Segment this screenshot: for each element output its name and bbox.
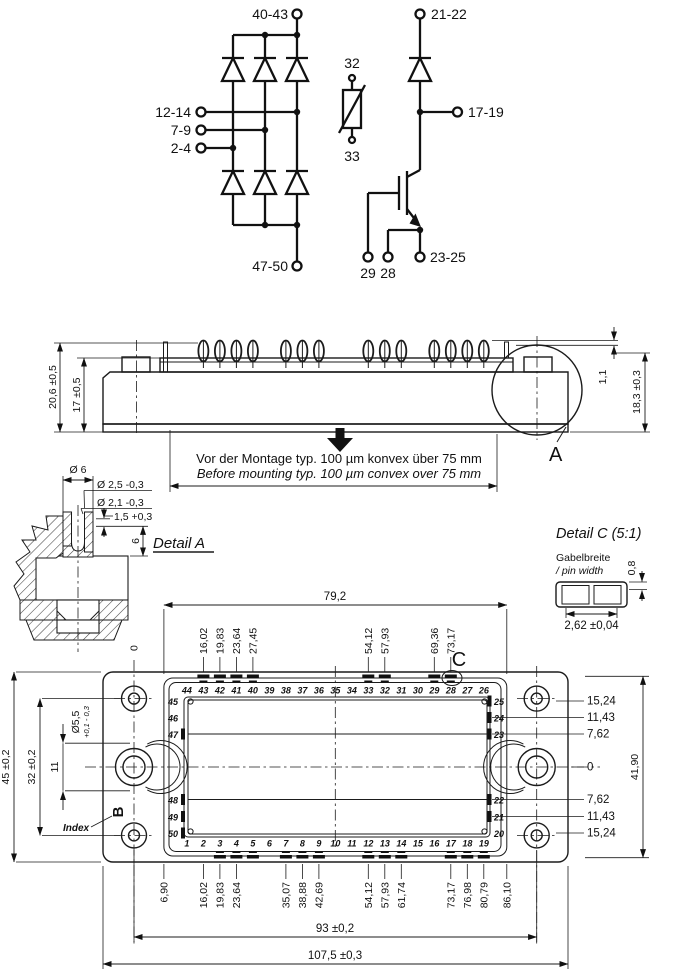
svg-text:31: 31 [396,686,406,696]
svg-text:42: 42 [214,686,225,696]
svg-text:14: 14 [396,839,406,849]
pin-slots [181,675,492,859]
svg-text:15: 15 [413,839,424,849]
note-german: Vor der Montage typ. 100 µm konvex über … [196,451,482,466]
svg-text:16: 16 [429,839,440,849]
top-dimension-labels: 16,02 19,83 23,64 27,45 54,12 57,93 69,3… [198,628,457,672]
technical-drawing: 40-43 12-14 7-9 2-4 47-50 32 33 21-22 [0,0,676,974]
svg-text:27: 27 [461,686,473,696]
thermistor-symbol: 32 33 [339,55,365,164]
igbt-branch: 21-22 17-19 23-25 29 28 [360,6,504,281]
svg-text:57,93: 57,93 [379,628,391,654]
svg-text:20: 20 [493,829,504,839]
dim-hole-dia: Ø5,5 [70,710,82,733]
svg-text:0: 0 [587,762,593,774]
convex-note: Vor der Montage typ. 100 µm konvex über … [170,428,497,492]
detail-c-view: Detail C (5:1) Gabelbreite / pin width 2… [555,526,647,632]
detail-a-dia6: Ø 6 [70,464,87,476]
side-view: A 20,6 ±0,5 17 ±0,5 1,1 18,3 ±0,3 Vor de… [47,327,650,492]
terminal-circle [453,108,462,117]
index-label: Index [63,823,90,834]
detail-a-view: Ø 6 Ø 2,5 -0,3 Ø 2,1 -0,3 1,5 +0,3 6 Det… [14,464,214,652]
svg-text:54,12: 54,12 [363,882,375,908]
svg-text:40: 40 [247,686,258,696]
pin-numbers-bottom: 1 2 3 4 5 6 7 8 9 10 11 12 13 14 15 16 1… [184,839,489,849]
dim-body-height: 18,3 ±0,3 [631,370,643,414]
svg-text:46: 46 [167,714,179,724]
detail-c-label-de: Gabelbreite [556,552,610,564]
svg-text:43: 43 [197,686,208,696]
svg-text:15,24: 15,24 [587,696,616,708]
svg-text:9: 9 [316,839,321,849]
svg-text:13: 13 [380,839,390,849]
terminal-label-29: 29 [360,265,376,281]
svg-text:32: 32 [380,686,390,696]
terminal-label-12-14: 12-14 [155,104,191,120]
svg-text:7,62: 7,62 [587,794,609,806]
terminal-label-7-9: 7-9 [171,122,191,138]
detail-a-dia21: Ø 2,1 -0,3 [97,497,144,509]
pin-numbers-right: 25 24 23 22 21 20 [493,697,505,839]
dim-107-5: 107,5 ±0,3 [308,950,362,962]
dim-height-41-90: 41,90 [629,754,641,780]
terminal-circle [416,10,425,19]
terminal-label-32: 32 [344,55,360,71]
svg-text:54,12: 54,12 [363,628,375,654]
dim-93: 93 ±0,2 [316,923,354,935]
svg-text:57,93: 57,93 [379,882,391,908]
terminal-circle [349,137,355,143]
svg-text:11: 11 [347,839,356,849]
svg-text:2: 2 [200,839,206,849]
svg-text:8: 8 [300,839,305,849]
detail-a-depth: 6 [130,538,142,544]
svg-text:35: 35 [330,686,341,696]
detail-a-lip: 1,5 +0,3 [114,511,152,523]
detail-c-height: 0,8 [626,561,638,576]
svg-text:23: 23 [493,730,504,740]
svg-text:69,36: 69,36 [429,628,441,654]
svg-text:19,83: 19,83 [214,628,226,654]
detail-a-dia25: Ø 2,5 -0,3 [97,479,144,491]
terminal-circle [197,108,206,117]
diode-symbols-bottom [222,171,308,194]
detail-a-callout-label: A [549,444,563,466]
svg-text:29: 29 [428,686,439,696]
svg-text:47: 47 [167,730,179,740]
svg-text:23,64: 23,64 [231,628,243,654]
svg-text:45: 45 [167,697,179,707]
svg-text:1: 1 [184,839,189,849]
svg-text:6,90: 6,90 [158,882,170,903]
terminal-label-2-4: 2-4 [171,140,191,156]
svg-text:34: 34 [347,686,357,696]
svg-text:30: 30 [413,686,423,696]
svg-text:22: 22 [493,796,504,806]
dim-pin-span: 79,2 [324,591,346,603]
svg-text:19,83: 19,83 [214,882,226,908]
terminal-circle [197,144,206,153]
svg-text:6: 6 [267,839,273,849]
terminal-circle [384,253,393,262]
terminal-label-23-25: 23-25 [430,249,466,265]
terminal-label-21-22: 21-22 [431,6,467,22]
svg-text:7: 7 [283,839,289,849]
svg-text:16,02: 16,02 [198,628,210,654]
svg-text:41: 41 [230,686,241,696]
bridge-rectifier: 40-43 12-14 7-9 2-4 47-50 [155,6,308,274]
svg-text:11,43: 11,43 [587,712,615,724]
terminal-label-17-19: 17-19 [468,104,504,120]
svg-text:80,79: 80,79 [478,882,490,908]
detail-c-title: Detail C (5:1) [556,526,641,542]
svg-text:42,69: 42,69 [313,882,325,908]
svg-text:38,88: 38,88 [297,882,309,908]
svg-text:27,45: 27,45 [247,628,259,654]
top-view: 44 43 42 41 40 39 38 37 36 35 34 33 32 3… [0,591,649,969]
svg-text:35,07: 35,07 [280,882,292,908]
svg-text:24: 24 [493,714,504,724]
right-dimension-labels: 15,24 11,43 7,62 0 7,62 11,43 15,24 [492,696,616,840]
svg-text:3: 3 [217,839,222,849]
terminal-circle [293,10,302,19]
svg-text:15,24: 15,24 [587,828,616,840]
datasheet-drawing-page: 40-43 12-14 7-9 2-4 47-50 32 33 21-22 [0,0,676,974]
dim-hole-pitch-32: 32 ±0,2 [26,749,38,784]
svg-text:37: 37 [297,686,308,696]
detail-c-width: 2,62 ±0,04 [564,620,619,632]
terminal-label-40-43: 40-43 [252,6,288,22]
svg-text:39: 39 [264,686,274,696]
svg-text:73,17: 73,17 [445,882,457,908]
svg-text:61,74: 61,74 [396,882,408,908]
svg-text:33: 33 [363,686,373,696]
circuit-schematic: 40-43 12-14 7-9 2-4 47-50 32 33 21-22 [155,6,504,281]
note-english: Before mounting typ. 100 µm convex over … [197,466,481,481]
dim-hole-tol: +0,1 - 0,3 [82,705,91,738]
detail-c-label-en: / pin width [555,565,603,577]
dim-zero-top: 0 [129,645,141,651]
svg-text:25: 25 [493,697,505,707]
svg-text:26: 26 [478,686,490,696]
diode-symbols-top [222,58,308,81]
dim-height-inner: 17 ±0,5 [71,377,83,412]
terminal-circle [293,262,302,271]
terminal-label-47-50: 47-50 [252,258,288,274]
svg-text:12: 12 [363,839,373,849]
pin-numbers-top: 44 43 42 41 40 39 38 37 36 35 34 33 32 3… [181,686,490,696]
svg-text:21: 21 [493,813,504,823]
terminal-circle [349,75,355,81]
terminal-label-28: 28 [380,265,396,281]
index-mark-b: B [110,806,127,817]
svg-text:23,64: 23,64 [231,882,243,908]
terminal-label-33: 33 [344,148,360,164]
svg-text:11,43: 11,43 [587,811,615,823]
svg-text:50: 50 [168,829,178,839]
svg-text:5: 5 [250,839,256,849]
svg-text:76,98: 76,98 [462,882,474,908]
svg-text:86,10: 86,10 [501,882,513,908]
svg-text:10: 10 [330,839,340,849]
detail-a-title: Detail A [153,535,205,552]
dim-pin-protrusion: 1,1 [597,370,609,385]
svg-text:28: 28 [445,686,456,696]
svg-text:16,02: 16,02 [198,882,210,908]
dim-slot-11: 11 [49,761,61,772]
svg-text:17: 17 [446,839,457,849]
svg-text:7,62: 7,62 [587,729,609,741]
svg-text:4: 4 [233,839,239,849]
svg-text:36: 36 [314,686,325,696]
dim-height-outer: 20,6 ±0,5 [47,365,59,409]
dim-height-outer-45: 45 ±0,2 [0,749,12,784]
svg-text:48: 48 [167,796,178,806]
svg-text:19: 19 [479,839,489,849]
pin-coils [198,341,488,369]
svg-text:44: 44 [181,686,192,696]
svg-text:49: 49 [167,813,178,823]
svg-text:18: 18 [462,839,472,849]
bottom-dimension-labels: 6,90 16,02 19,83 23,64 35,07 38,88 42,69… [158,864,513,908]
detail-c-callout-label: C [452,649,466,671]
svg-text:38: 38 [281,686,291,696]
terminal-circle [197,126,206,135]
terminal-circle [364,253,373,262]
terminal-circle [416,253,425,262]
